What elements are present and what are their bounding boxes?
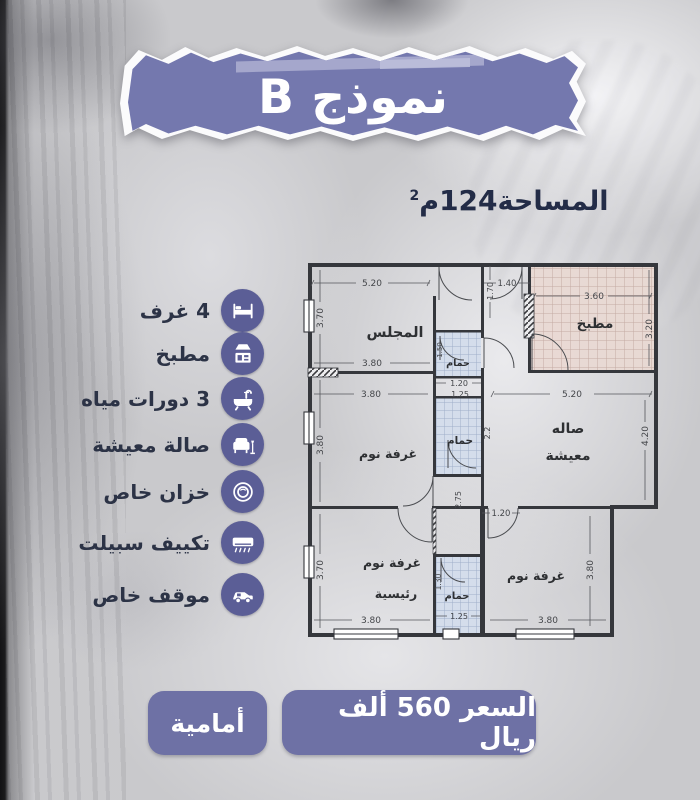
orientation-label: أمامية [170,709,244,738]
feature-living: صالة معيشة [92,423,264,466]
feature-tank: خزان خاص [103,470,264,513]
dim-kitchen-height: 3.20 [645,319,655,339]
area-unit: م [419,186,439,217]
dim-entry-width: 1.40 [498,279,517,289]
room-label-master-1: غرفة نوم [363,555,421,571]
feature-label: تكييف سبيلت [78,531,210,555]
dim-living-width: 5.20 [562,390,582,400]
feature-bathrooms: 3 دورات مياه [81,377,264,420]
area-value: 124 [439,184,497,217]
sofa-icon [221,423,264,466]
flyer-page: نموذج B المساحة124م2 4 غرف مطبخ 3 دورات … [0,0,700,800]
tank-icon [221,470,264,513]
kitchen-icon [221,332,264,375]
dim-bath-bot-width: 1.25 [450,612,468,621]
area-sup: 2 [410,188,420,204]
dim-bath-top-width: 1.20 [450,379,468,388]
dim-bath-mid-height: 2.2 [483,427,492,440]
feature-label: صالة معيشة [92,433,210,457]
dim-master-height: 3.70 [316,560,326,580]
bathtub-icon [221,377,264,420]
dim-master-width: 3.80 [361,616,381,626]
room-label-master-2: رئيسية [375,586,417,601]
feature-label: 3 دورات مياه [81,387,210,411]
dim-kitchen-width: 3.60 [584,292,604,302]
feature-parking: موقف خاص [92,573,264,616]
feature-label: موقف خاص [92,583,210,607]
model-title: نموذج B [120,44,586,143]
dim-bedright-width: 3.80 [538,616,558,626]
feature-label: مطبخ [156,342,210,366]
price-label: السعر 560 ألف ريال [282,693,536,753]
room-label-bath-mid: حمام [447,435,473,447]
room-label-bath-top: حمام [446,358,470,369]
dim-bedleft-height: 3.80 [316,435,326,455]
dim-hall-width: 1.20 [492,509,511,519]
orientation-button[interactable]: أمامية [148,691,267,755]
bed-icon [221,289,264,332]
area-text: المساحة124م2 [398,184,620,217]
room-label-kitchen: مطبخ [577,316,614,332]
room-label-bath-bottom: حمام [445,591,470,602]
feature-label: خزان خاص [103,480,210,504]
feature-label: 4 غرف [140,299,210,323]
dim-entry-height: 1.70 [486,282,495,300]
car-icon [221,573,264,616]
room-label-bedroom-right: غرفة نوم [507,568,565,584]
dim-majlis-width: 5.20 [362,279,382,289]
feature-rooms: 4 غرف [140,289,264,332]
dim-majlis-height: 3.70 [316,308,326,328]
dim-bath-top-height: 1.50 [436,342,444,358]
floor-plan: 5.20 1.40 3.60 3.70 1.70 3.20 3.80 1.20 … [300,250,680,650]
model-banner: نموذج B [120,44,586,143]
feature-kitchen: مطبخ [156,332,264,375]
feature-ac: تكييف سبيلت [78,521,264,564]
dim-bedright-height: 3.80 [586,560,596,580]
dim-bath-mid-width: 1.25 [451,390,469,399]
room-label-bedroom-left: غرفة نوم [359,446,417,462]
area-label: المساحة [498,186,609,217]
dim-hall-height: 2.75 [454,491,463,509]
dim-majlis-width2: 3.80 [362,359,382,369]
room-label-living-1: صاله [552,421,585,437]
dim-bath-bot-height: 1.30 [434,573,443,590]
dim-bedleft-width: 3.80 [361,390,381,400]
dim-living-height: 4.20 [641,426,651,446]
ac-icon [221,521,264,564]
room-label-living-2: معيشة [545,448,590,464]
price-button[interactable]: السعر 560 ألف ريال [282,690,536,755]
room-label-majlis: المجلس [366,325,423,341]
